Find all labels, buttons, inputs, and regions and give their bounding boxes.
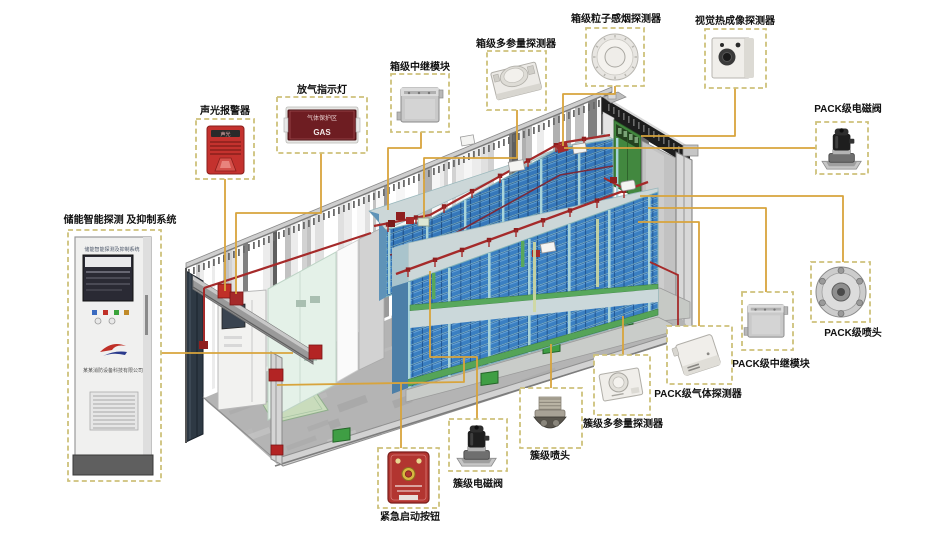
svg-text:箱级粒子感烟探测器: 箱级粒子感烟探测器 (571, 12, 662, 25)
svg-text:簇级多参量探测器: 簇级多参量探测器 (582, 417, 664, 430)
svg-text:某某消防设备科技有限公司: 某某消防设备科技有限公司 (83, 367, 143, 374)
svg-text:PACK级喷头: PACK级喷头 (824, 326, 882, 339)
svg-text:声光: 声光 (220, 131, 230, 138)
svg-text:声光报警器: 声光报警器 (199, 104, 251, 117)
svg-text:簇级电磁阀: 簇级电磁阀 (452, 477, 503, 490)
svg-text:储能智能探测 及抑制系统: 储能智能探测 及抑制系统 (63, 213, 177, 226)
svg-text:箱级中继模块: 箱级中继模块 (390, 60, 451, 73)
svg-text:簇级喷头: 簇级喷头 (529, 449, 570, 462)
svg-text:PACK级气体探测器: PACK级气体探测器 (654, 387, 743, 400)
svg-text:紧急启动按钮: 紧急启动按钮 (380, 510, 440, 523)
svg-text:储能智能探测及抑制系统: 储能智能探测及抑制系统 (84, 246, 139, 253)
svg-text:放气指示灯: 放气指示灯 (296, 83, 347, 96)
svg-text:PACK级中继模块: PACK级中继模块 (732, 357, 811, 370)
svg-text:气体保护区: 气体保护区 (307, 114, 337, 122)
svg-text:视觉热成像探测器: 视觉热成像探测器 (695, 14, 776, 27)
svg-text:PACK级电磁阀: PACK级电磁阀 (814, 102, 882, 115)
svg-text:箱级多参量探测器: 箱级多参量探测器 (476, 37, 557, 50)
svg-text:GAS: GAS (313, 128, 331, 137)
